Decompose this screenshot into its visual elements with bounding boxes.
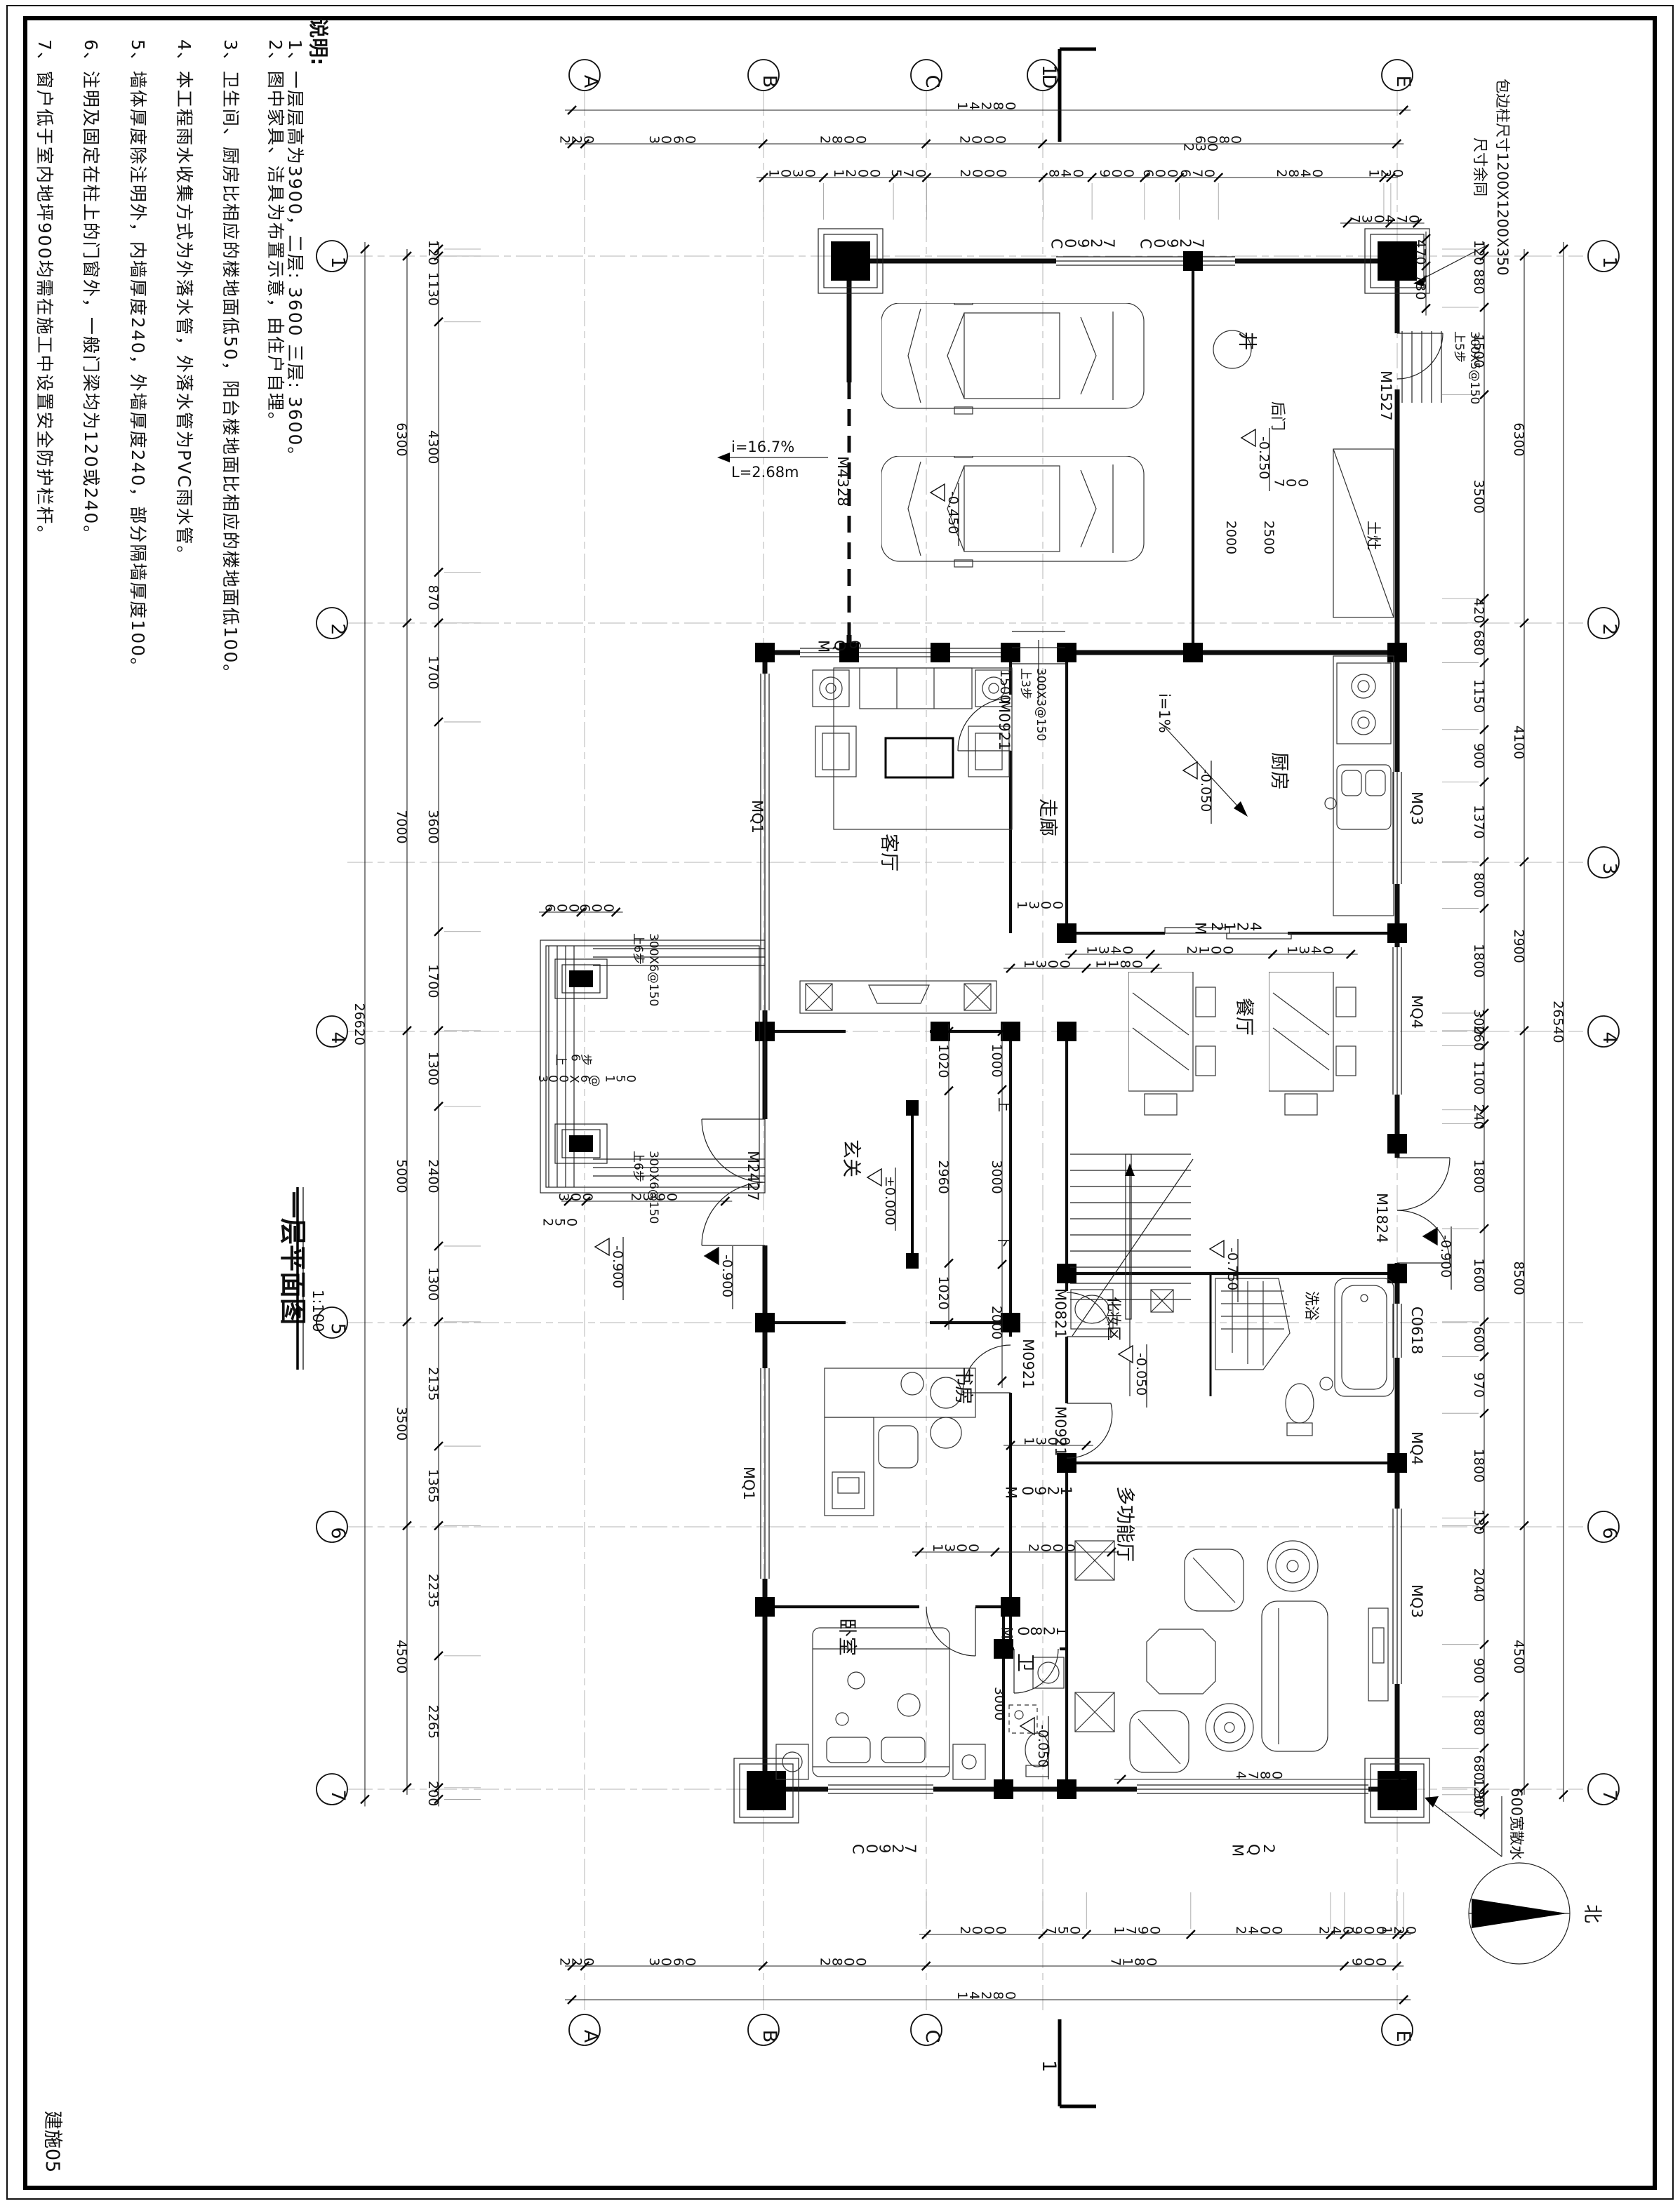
- dim-value: 470: [1382, 215, 1421, 227]
- tag-mq4-bath: MQ4: [1408, 1431, 1425, 1465]
- dim-value: 2400: [1233, 1926, 1284, 1938]
- kitchen-slope: i=1%: [1156, 693, 1173, 733]
- axis-bubble-label: 4: [1599, 1031, 1620, 1043]
- dim-value: 1300: [425, 1267, 441, 1301]
- dim-value: 4780: [1233, 1771, 1284, 1783]
- kitchen-counter: [1325, 656, 1394, 916]
- tag-mq2: MQ2: [1229, 1844, 1277, 1860]
- level-value: -0.900: [610, 1245, 625, 1288]
- level-value: -0.050: [1133, 1353, 1149, 1396]
- dim-value: 2000: [957, 1926, 1008, 1938]
- dim-value: 750: [1043, 1926, 1082, 1938]
- tag-mq1-living: MQ1: [749, 800, 766, 834]
- dim-value: 4100: [1511, 726, 1526, 759]
- tag-m1824: M1824: [1373, 1193, 1390, 1243]
- dim-value: 2000: [1026, 1544, 1077, 1556]
- level-value: -0.900: [1438, 1235, 1453, 1278]
- level-triangle: [1183, 762, 1197, 779]
- tag-mq3-kitchen: MQ3: [1408, 791, 1425, 825]
- dim-value: 1020: [935, 1044, 951, 1078]
- level-value: -0.900: [719, 1255, 735, 1297]
- curtain-mq3-a: [1393, 772, 1401, 884]
- room-living: 客厅: [878, 834, 900, 871]
- level-triangle: [931, 484, 945, 501]
- dim-value: 120: [425, 240, 441, 265]
- dim-value: 2960: [935, 1160, 951, 1194]
- axis-bubble-label: E: [1392, 2030, 1414, 2042]
- bed: [776, 1628, 985, 1779]
- dim-value: 970: [1471, 1372, 1486, 1398]
- dim-value: 3060: [646, 135, 698, 147]
- dim-value: 670: [1178, 169, 1217, 181]
- dim-value: 1340: [1284, 946, 1335, 958]
- porch-steps-n-spec: 300X6@150: [646, 933, 660, 1006]
- tag-c0927-top1: C0927: [1048, 239, 1117, 253]
- back-door-label: 后门: [1269, 401, 1286, 431]
- level-triangle: [1119, 1346, 1133, 1363]
- tag-mq4-dining: MQ4: [1408, 995, 1425, 1029]
- room-bath: 洗浴: [1303, 1291, 1320, 1321]
- room-study: 书房: [952, 1367, 974, 1405]
- dim-value: 26540: [1550, 1001, 1566, 1043]
- porch-steps-n-count: 上6步: [631, 933, 645, 965]
- corner-col-note-1: 包边柱尺寸1200X1200X350: [1494, 79, 1511, 276]
- level-value: -0.750: [1225, 1248, 1240, 1290]
- column: [1057, 643, 1076, 662]
- drawing-sheet: -0.450-0.250-0.050±0.000-0.750-0.900-0.9…: [0, 0, 1680, 2206]
- porch-steps-w-spec: 300X6@150: [535, 1075, 638, 1090]
- dim-value: 220: [556, 1958, 596, 1970]
- column: [1387, 1453, 1407, 1473]
- north-arrow: [1469, 1863, 1570, 1964]
- dim-value: 1790: [1111, 1926, 1162, 1938]
- floor-plan-canvas: -0.450-0.250-0.050±0.000-0.750-0.900-0.9…: [0, 0, 1680, 2206]
- dim-value: 600: [1140, 169, 1180, 181]
- column: [1001, 1022, 1020, 1041]
- axis-bubble-label: 2: [327, 623, 349, 635]
- level-triangle: [705, 1248, 719, 1264]
- dim-value: 260: [1471, 1026, 1486, 1051]
- note-item: 2、图中家具、洁具为布置示意，由住户自理。: [265, 39, 286, 431]
- dim-value: 1600: [1471, 1258, 1486, 1292]
- dim-value: 730: [1413, 274, 1428, 300]
- axis-bubble-label: 6: [1599, 1527, 1620, 1539]
- notes-header: 说明:: [307, 18, 330, 65]
- dim-value: 220: [556, 135, 596, 147]
- axis-bubble-label: 4: [327, 1031, 349, 1043]
- level-value: ±0.000: [882, 1176, 898, 1225]
- dim-value: 14280: [954, 102, 1018, 114]
- room-makeup: 化妆区: [1105, 1297, 1122, 1341]
- column: [931, 1022, 950, 1041]
- dim-value: 300: [1471, 1791, 1486, 1816]
- column: [1387, 923, 1407, 943]
- tag-m2124: M2124: [1192, 922, 1264, 938]
- axis-bubble-label: 1: [327, 256, 349, 268]
- dim-value: 3500: [1471, 480, 1486, 514]
- tag-m4328: M4328: [834, 456, 851, 507]
- room-bedroom: 卧室: [836, 1618, 858, 1656]
- dim-value: 900: [1349, 1958, 1388, 1970]
- dim-value: 800: [1471, 872, 1486, 897]
- tag-mq3-hall: MQ3: [1408, 1584, 1425, 1618]
- sheet-number: 建施05: [41, 2111, 63, 2172]
- dim-value: 3000: [989, 1160, 1004, 1194]
- column: [1387, 1134, 1407, 1154]
- corner-col-note-2: 尺寸余同: [1472, 138, 1488, 196]
- dim-value: 420: [1471, 598, 1486, 623]
- dim-2000-yard: 2000: [1223, 521, 1239, 554]
- dim-value: 880: [1471, 1710, 1486, 1735]
- dim-value: 2840: [1274, 169, 1325, 181]
- apron-label: 600宽散水: [1508, 1788, 1525, 1860]
- dim-value: 600: [1471, 1327, 1486, 1352]
- back-steps-count: 上5步: [1452, 331, 1466, 363]
- window-c0618: [1393, 1304, 1401, 1358]
- porch-steps-s-spec: 300X6@150: [646, 1151, 660, 1224]
- tag-m0921-study: M0921: [1020, 1339, 1036, 1389]
- dim-value: 680: [1471, 1756, 1486, 1781]
- dim-value: 2265: [425, 1705, 441, 1739]
- porch-column-n: [555, 959, 607, 998]
- note-item: 4、本工程雨水收集方式为外落水管，外落水管为PVC雨水管。: [174, 39, 194, 565]
- dim-value: 900: [1471, 1658, 1486, 1683]
- north-label: 北: [1581, 1904, 1603, 1923]
- stove-label: 土灶: [1365, 521, 1382, 550]
- door-back-m1527: [1397, 333, 1443, 379]
- tag-m2427: M2427: [745, 1151, 761, 1201]
- dim-value: 600: [542, 904, 581, 916]
- dim-value: 2800: [817, 135, 868, 147]
- axis-bubble-label: C: [921, 75, 943, 88]
- dim-1500: 1500: [997, 669, 1013, 703]
- room-corridor: 走廊: [1036, 798, 1058, 836]
- axis-bubble-label: A: [580, 2030, 601, 2043]
- curtain-mq2: [1137, 1785, 1368, 1793]
- room-toilet: 卫: [1014, 1653, 1036, 1672]
- column: [1001, 1597, 1020, 1617]
- column: [755, 1597, 775, 1617]
- level-value: -0.050: [1198, 769, 1213, 812]
- stair-up-label: 上: [996, 1097, 1013, 1112]
- bathtub: [1335, 1278, 1394, 1396]
- dim-value: 7180: [1107, 1958, 1159, 1970]
- level-value: -0.050: [1035, 1725, 1051, 1767]
- dim-value: 2400: [425, 1159, 441, 1193]
- level-triangle: [1241, 429, 1255, 446]
- column: [994, 1779, 1013, 1799]
- dim-value: 2000: [989, 1306, 1004, 1339]
- dim-value: 1020: [935, 1276, 951, 1309]
- dim-value: 1130: [425, 272, 441, 306]
- column: [755, 643, 775, 662]
- dim-value: 2900: [1511, 929, 1526, 963]
- stove-counter: [1333, 449, 1394, 617]
- column: [1387, 643, 1407, 662]
- ramp-slope: i=16.7%: [731, 439, 794, 455]
- room-foyer: 玄关: [840, 1139, 862, 1177]
- dim-value: 1100: [1471, 1061, 1486, 1095]
- ramp-length: L=2.68m: [731, 464, 799, 481]
- furniture: [776, 298, 1388, 1779]
- dim-value: 2040: [1471, 1568, 1486, 1602]
- dim-value: 4500: [1511, 1640, 1526, 1673]
- column: [1057, 1022, 1076, 1041]
- dim-value: 6300: [394, 422, 409, 456]
- section-label-bottom: 1: [1038, 2060, 1060, 2072]
- window-c0927-top: [1056, 257, 1235, 265]
- tag-m0821-toilet: M0821: [999, 1626, 1070, 1643]
- dim-value: 470: [1413, 239, 1428, 265]
- door-m0921-hall: [1067, 1403, 1112, 1458]
- dim-value: 4500: [394, 1640, 409, 1673]
- corridor-steps-count: 上3步: [1018, 668, 1032, 700]
- room-hall: 多功能厅: [1114, 1486, 1135, 1562]
- note-item: 7、窗户低于室内地坪900均需在施工中设置安全防护栏杆。: [34, 39, 55, 544]
- dim-value: 300: [556, 1193, 595, 1205]
- dim-value: 680: [1471, 630, 1486, 655]
- dim-value: 5000: [394, 1159, 409, 1193]
- column: [1001, 643, 1020, 662]
- dim-value: 2235: [425, 1574, 441, 1607]
- axis-bubble-label: E: [1392, 75, 1414, 87]
- dim-value: 1700: [425, 655, 441, 689]
- car-1: [881, 298, 1144, 414]
- notes-block: 说明:1、一层层高为3900，二层: 3600 三层: 3600。2、图中家具、…: [34, 18, 330, 683]
- level-value: -0.450: [945, 491, 961, 534]
- tag-m0821-makeup: M0821: [1052, 1288, 1069, 1339]
- dim-value: 730: [1347, 215, 1387, 227]
- foyer-screen: [906, 1100, 919, 1269]
- dim-value: 120: [1471, 240, 1486, 265]
- level-triangle: [1210, 1241, 1224, 1257]
- column: [1183, 251, 1203, 271]
- note-item: 6、注明及固定在柱上的门窗外，一般门梁均为120或240。: [81, 39, 101, 544]
- column: [755, 1313, 775, 1332]
- tag-m0921-hall: M0921: [1052, 1406, 1069, 1457]
- tag-c0618: C0618: [1408, 1306, 1425, 1354]
- drawing-scale: 1:100: [309, 1290, 326, 1332]
- level-markers: -0.450-0.250-0.050±0.000-0.750-0.900-0.9…: [595, 428, 1453, 1779]
- axis-bubble-label: C: [921, 2030, 943, 2043]
- tag-mq1-study: MQ1: [740, 1466, 757, 1500]
- level-triangle: [867, 1169, 881, 1186]
- room-dining: 餐厅: [1233, 998, 1255, 1036]
- level-value: -0.250: [1256, 436, 1272, 479]
- level-triangle: [1020, 1718, 1034, 1734]
- apron-leader: [1425, 1796, 1502, 1857]
- dim-value: 2100: [1184, 946, 1235, 958]
- dim-value: 8500: [1511, 1261, 1526, 1295]
- dim-value: 1300: [1021, 960, 1072, 972]
- dim-value: 840: [1046, 169, 1086, 181]
- section-mark-top: [1060, 49, 1096, 142]
- dim-value: 1030: [766, 169, 818, 181]
- stair-down-label: 下: [996, 1234, 1013, 1248]
- column: [1057, 1264, 1076, 1283]
- curtain-mq3-b: [1393, 1509, 1401, 1684]
- dim-value: 570: [888, 169, 928, 181]
- axis-bubble-label: B: [759, 75, 780, 88]
- dim-value: 1700: [425, 964, 441, 998]
- living-sofa-set: [813, 668, 1012, 829]
- car-2: [881, 450, 1144, 567]
- dim-value: 1300: [930, 1544, 981, 1556]
- axis-bubble-label: 6: [327, 1527, 349, 1539]
- axis-bubble-label: 7: [1599, 1789, 1620, 1801]
- dim-value: 2800: [817, 1958, 868, 1970]
- dim-value: 3060: [646, 1958, 698, 1970]
- section-mark-bottom: [1060, 2019, 1096, 2106]
- axis-bubbles: ABCDEABCE124567123467: [316, 60, 1620, 2045]
- dim-value: 1180: [1093, 960, 1145, 972]
- axis-bubble-label: 2: [1599, 623, 1620, 635]
- porch-steps-s-count: 上6步: [631, 1151, 645, 1182]
- dim-value: 600: [577, 904, 616, 916]
- back-steps: [1402, 331, 1441, 403]
- dim-250: 250: [540, 1218, 579, 1230]
- dim-value: 4300: [425, 430, 441, 464]
- dim-value: 1800: [1471, 1159, 1486, 1193]
- column: [931, 643, 950, 662]
- corridor-steps-spec: 300X3@150: [1034, 668, 1048, 741]
- note-item: 5、墙体厚度除注明外，内墙厚度240，外墙厚度240，部分隔墙厚度100。: [128, 39, 148, 676]
- tv-cabinet-living: [800, 981, 996, 1013]
- dim-value: 1000: [989, 1043, 1004, 1077]
- curtain-mq4: [1393, 947, 1401, 1095]
- axis-bubble-label: 7: [327, 1789, 349, 1801]
- curtain-mq1-b: [761, 1368, 769, 1579]
- tag-c0927-top2: C0927: [1137, 239, 1206, 253]
- dim-700: 700: [1271, 479, 1310, 490]
- room-kitchen: 厨房: [1268, 752, 1290, 790]
- note-item: 3、卫生间、厨房比相应的楼地面低50，阳台楼地面比相应的楼地面低100。: [220, 39, 241, 683]
- tag-m0921-hallway: M0921: [1003, 1486, 1074, 1502]
- dim-value: 3600: [425, 810, 441, 843]
- level-triangle: [1423, 1228, 1437, 1245]
- dim-230: 230: [1180, 143, 1220, 155]
- axis-bubble-label: 5: [327, 1323, 349, 1335]
- dim-value: 2135: [425, 1367, 441, 1401]
- porch-column-s: [555, 1124, 607, 1163]
- back-steps-spec: 300X5@150: [1467, 331, 1481, 404]
- level-triangle: [595, 1238, 609, 1255]
- axis-bubble-label: A: [580, 75, 601, 88]
- dim-value: 870: [425, 585, 441, 610]
- dim-value: 1150: [1471, 679, 1486, 713]
- fixtures: [906, 330, 1394, 1777]
- dim-value: 880: [1471, 269, 1486, 294]
- dim-value: 3500: [394, 1407, 409, 1440]
- dim-value: 1370: [1471, 805, 1486, 838]
- dim-value: 14280: [954, 1991, 1018, 2003]
- shower: [1215, 1278, 1290, 1370]
- window-c0927-bottom: [828, 1785, 933, 1793]
- axis-bubble-label: B: [759, 2030, 780, 2043]
- dim-value: 1800: [1471, 944, 1486, 977]
- dim-value: 130: [1471, 1509, 1486, 1535]
- section-label-top: 1: [1038, 65, 1060, 76]
- sheet-border: [7, 6, 1673, 2199]
- axis-bubble-label: 3: [1599, 862, 1620, 874]
- dim-value: 120: [1366, 169, 1405, 181]
- dim-2500-yard: 2500: [1261, 521, 1276, 554]
- dim-value: 1200: [831, 169, 882, 181]
- dim-value: 7000: [394, 810, 409, 843]
- dim-3000-toilet: 3000: [992, 1687, 1007, 1720]
- well-label: 井: [1236, 332, 1258, 351]
- dim-value: 200: [425, 1781, 441, 1806]
- dim-value: 240: [1471, 1104, 1486, 1130]
- dim-value: 1365: [425, 1469, 441, 1503]
- dim-value: 120: [1379, 1926, 1418, 1938]
- hall-sofa-set: [1075, 1541, 1388, 1772]
- dim-value: 1340: [1084, 946, 1135, 958]
- dim-value: 2000: [956, 135, 1008, 147]
- column: [1057, 923, 1076, 943]
- dim-1300-corridor: 1300: [1014, 901, 1065, 913]
- column: [1183, 643, 1203, 662]
- dim-value: 2000: [957, 169, 1008, 181]
- dim-value: 26620: [352, 1003, 367, 1045]
- porch-steps-w-count: 上6步: [554, 1054, 593, 1069]
- column: [1057, 1779, 1076, 1799]
- tag-m1527: M1527: [1378, 370, 1394, 421]
- dim-value: 1800: [1471, 1449, 1486, 1483]
- tag-c0927-bottom: C0927: [849, 1844, 919, 1858]
- dim-value: 900: [1097, 169, 1136, 181]
- dim-value: 1300: [425, 1052, 441, 1085]
- axis-bubble-label: 1: [1599, 256, 1620, 268]
- tag-m0921-corridor: M0921: [996, 700, 1013, 751]
- toilet-bath: [1286, 1377, 1333, 1436]
- note-item: 1、一层层高为3900，二层: 3600 三层: 3600。: [285, 39, 305, 465]
- dim-value: 6300: [1511, 422, 1526, 456]
- dim-value: 900: [1471, 743, 1486, 768]
